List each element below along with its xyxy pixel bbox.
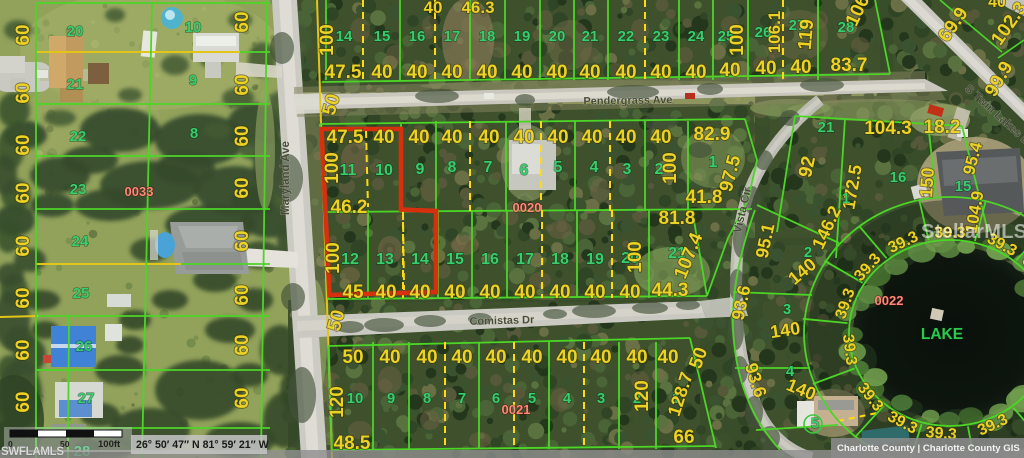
svg-text:45: 45 [342,282,364,303]
svg-text:Comistas Dr: Comistas Dr [469,314,535,328]
svg-text:40: 40 [556,347,577,368]
svg-text:Maryland Ave: Maryland Ave [280,141,292,215]
svg-text:19: 19 [514,28,531,45]
svg-text:100: 100 [317,24,338,56]
svg-text:15: 15 [374,28,391,45]
svg-text:100ft: 100ft [98,439,121,450]
svg-text:1: 1 [709,154,718,171]
svg-text:18: 18 [551,251,569,268]
svg-text:40: 40 [485,347,506,368]
svg-text:24: 24 [72,233,89,250]
svg-text:50: 50 [342,347,363,368]
svg-text:9: 9 [387,390,395,407]
svg-text:40: 40 [584,282,605,303]
svg-text:92: 92 [795,154,820,179]
svg-text:17: 17 [444,28,461,45]
svg-text:60: 60 [13,287,34,308]
svg-text:40: 40 [685,62,706,83]
svg-text:17: 17 [516,251,534,268]
svg-text:60: 60 [232,177,253,198]
svg-text:106.1: 106.1 [765,11,784,54]
svg-text:20: 20 [549,28,566,45]
svg-text:21: 21 [67,76,84,93]
svg-text:46.3: 46.3 [461,0,494,17]
svg-text:60: 60 [232,11,253,32]
svg-text:8: 8 [423,390,431,407]
svg-text:60: 60 [13,24,34,45]
svg-text:23: 23 [70,181,87,198]
svg-text:60: 60 [232,230,253,251]
svg-text:41.8: 41.8 [686,187,723,208]
svg-text:LAKE: LAKE [921,326,963,343]
svg-text:60: 60 [232,125,253,146]
svg-text:40: 40 [719,60,740,81]
svg-text:0020: 0020 [513,200,542,215]
svg-text:SWFLAMLS: SWFLAMLS [1,446,64,458]
svg-text:40: 40 [626,347,647,368]
svg-text:4: 4 [590,159,599,176]
svg-text:8: 8 [448,159,457,176]
svg-text:4: 4 [563,390,572,407]
svg-text:100: 100 [625,241,646,273]
svg-text:StellarMLS: StellarMLS [921,221,1024,243]
svg-text:82.9: 82.9 [694,124,731,145]
svg-text:40: 40 [441,62,462,83]
svg-text:9: 9 [189,72,197,89]
svg-text:Pendergrass Ave: Pendergrass Ave [583,94,672,108]
svg-text:40: 40 [478,127,499,148]
svg-text:26° 50′ 47″ N 81° 59′ 21″ W: 26° 50′ 47″ N 81° 59′ 21″ W [136,439,269,451]
svg-text:20: 20 [67,23,84,40]
svg-text:40: 40 [441,127,462,148]
svg-text:60: 60 [232,334,253,355]
svg-text:40: 40 [657,347,678,368]
svg-text:40: 40 [988,0,1006,11]
svg-text:18: 18 [479,28,496,45]
svg-text:120: 120 [327,386,348,418]
svg-text:120: 120 [632,380,653,412]
svg-text:22: 22 [618,28,635,45]
svg-text:40: 40 [521,347,542,368]
svg-text:47.5: 47.5 [325,62,362,83]
svg-text:60: 60 [13,339,34,360]
svg-text:104.3: 104.3 [864,118,912,139]
svg-text:46.2: 46.2 [331,197,368,218]
svg-text:10: 10 [185,19,202,36]
svg-text:44.3: 44.3 [652,280,689,301]
svg-text:40: 40 [615,62,636,83]
svg-text:40: 40 [579,62,600,83]
svg-text:100: 100 [322,152,343,184]
svg-text:40: 40 [514,282,535,303]
svg-text:60: 60 [232,284,253,305]
svg-text:40: 40 [444,282,465,303]
svg-text:25: 25 [73,285,90,302]
svg-text:119: 119 [795,18,819,50]
svg-text:40: 40 [479,282,500,303]
svg-text:7: 7 [458,390,466,407]
svg-text:100: 100 [727,24,748,56]
svg-text:40: 40 [416,347,437,368]
svg-text:16: 16 [890,169,907,186]
svg-text:0033: 0033 [125,184,154,199]
svg-text:Charlotte County | Charlotte C: Charlotte County | Charlotte County GIS [837,443,1020,454]
svg-text:40: 40 [547,127,568,148]
svg-text:40: 40 [476,62,497,83]
svg-text:40: 40 [650,127,671,148]
svg-text:100: 100 [660,152,681,184]
svg-text:15: 15 [446,251,464,268]
svg-text:3: 3 [623,161,632,178]
svg-text:40: 40 [790,57,811,78]
svg-text:1: 1 [842,190,850,207]
svg-text:14: 14 [411,251,429,268]
svg-text:3: 3 [783,301,791,318]
svg-text:26: 26 [76,338,93,355]
svg-text:6: 6 [520,162,529,179]
svg-text:16: 16 [409,28,426,45]
svg-text:8: 8 [190,125,198,142]
svg-text:21: 21 [818,119,835,136]
svg-text:10: 10 [375,162,393,179]
svg-text:100: 100 [323,242,344,274]
svg-text:40: 40 [379,347,400,368]
svg-text:3: 3 [597,390,605,407]
svg-text:40: 40 [424,0,443,17]
svg-text:40: 40 [371,62,392,83]
svg-text:40: 40 [755,58,776,79]
svg-text:40: 40 [581,127,602,148]
svg-text:24: 24 [688,28,705,45]
svg-text:40: 40 [511,62,532,83]
svg-text:60: 60 [13,134,34,155]
svg-text:60: 60 [13,391,34,412]
svg-text:18.2: 18.2 [924,117,961,138]
svg-text:0021: 0021 [502,402,531,417]
svg-text:60: 60 [232,387,253,408]
svg-text:9: 9 [416,161,425,178]
svg-text:40: 40 [549,282,570,303]
svg-text:40: 40 [408,127,429,148]
svg-text:5: 5 [554,159,563,176]
svg-text:150: 150 [916,167,938,198]
svg-text:21: 21 [582,28,599,45]
svg-text:60: 60 [13,235,34,256]
svg-text:7: 7 [484,159,493,176]
svg-text:60: 60 [13,82,34,103]
svg-text:47.5: 47.5 [327,127,364,148]
svg-text:15: 15 [955,178,972,195]
svg-text:27: 27 [78,390,95,407]
svg-text:16: 16 [481,251,499,268]
svg-text:19: 19 [586,251,604,268]
svg-text:66: 66 [673,427,694,448]
svg-text:40: 40 [513,127,534,148]
svg-text:10: 10 [347,390,364,407]
svg-text:40: 40 [590,347,611,368]
svg-text:60: 60 [13,182,34,203]
svg-text:6: 6 [492,390,500,407]
svg-text:83.7: 83.7 [831,55,868,76]
svg-text:40: 40 [409,282,430,303]
svg-text:40: 40 [451,347,472,368]
svg-text:13: 13 [376,251,394,268]
svg-text:40: 40 [619,282,640,303]
svg-text:60: 60 [232,74,253,95]
svg-text:40: 40 [615,127,636,148]
svg-text:40: 40 [373,127,394,148]
svg-text:40: 40 [406,62,427,83]
svg-text:40: 40 [546,62,567,83]
svg-text:22: 22 [70,128,87,145]
svg-text:14: 14 [336,28,353,45]
svg-text:0022: 0022 [875,293,904,308]
svg-text:5: 5 [811,415,819,432]
svg-text:23: 23 [653,28,670,45]
svg-text:140: 140 [769,318,802,342]
svg-text:40: 40 [650,62,671,83]
svg-text:40: 40 [375,282,396,303]
svg-text:81.8: 81.8 [659,208,696,229]
